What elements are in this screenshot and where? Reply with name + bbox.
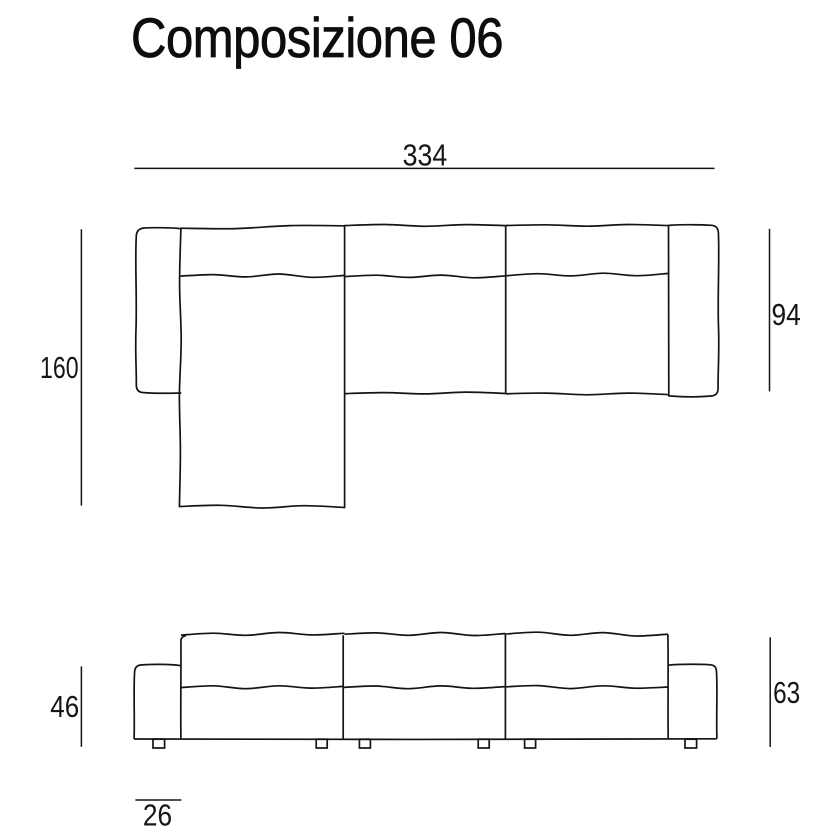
svg-text:26: 26 xyxy=(143,799,172,833)
svg-text:63: 63 xyxy=(773,676,800,710)
svg-text:46: 46 xyxy=(50,690,79,724)
svg-text:94: 94 xyxy=(772,298,801,332)
svg-text:334: 334 xyxy=(403,138,448,172)
svg-text:160: 160 xyxy=(40,351,79,385)
